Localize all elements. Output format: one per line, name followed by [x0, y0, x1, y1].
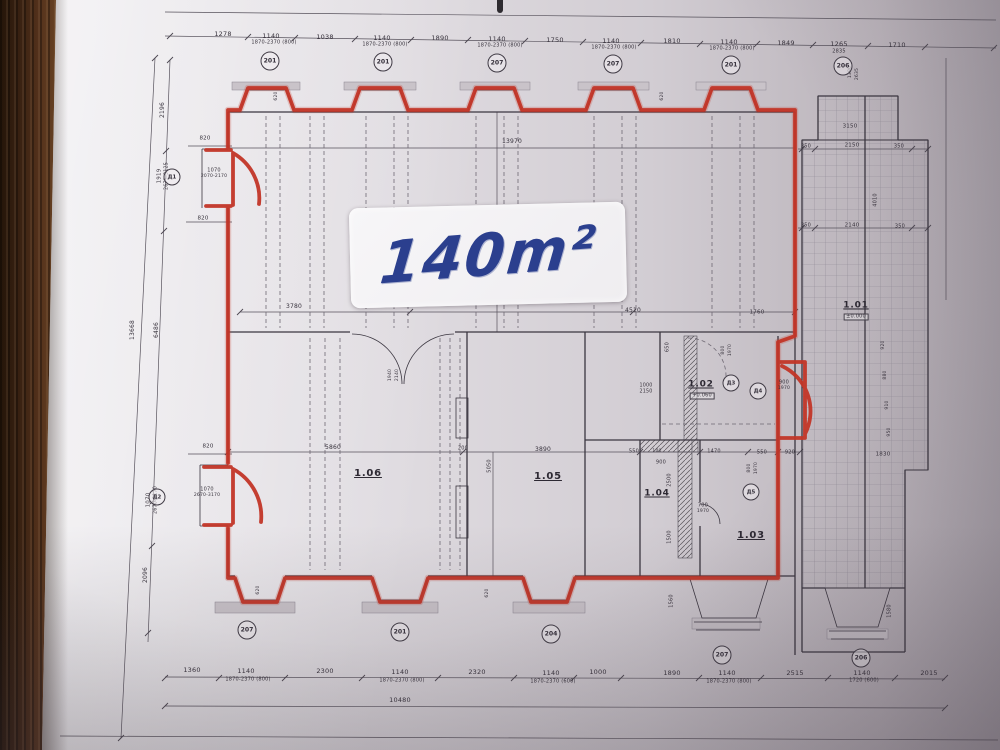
- floorplan-linework: [0, 0, 1000, 750]
- area-value: 140m²: [376, 212, 599, 297]
- pen-mark: [497, 0, 503, 13]
- projection-dashes: [266, 116, 775, 570]
- hatched-walls: [640, 336, 698, 558]
- floorplan-photo: 127811401870-2370 (800)103811401870-2370…: [0, 0, 1000, 750]
- red-marker-outline: [204, 88, 811, 602]
- area-sticker: 140m²: [349, 202, 627, 309]
